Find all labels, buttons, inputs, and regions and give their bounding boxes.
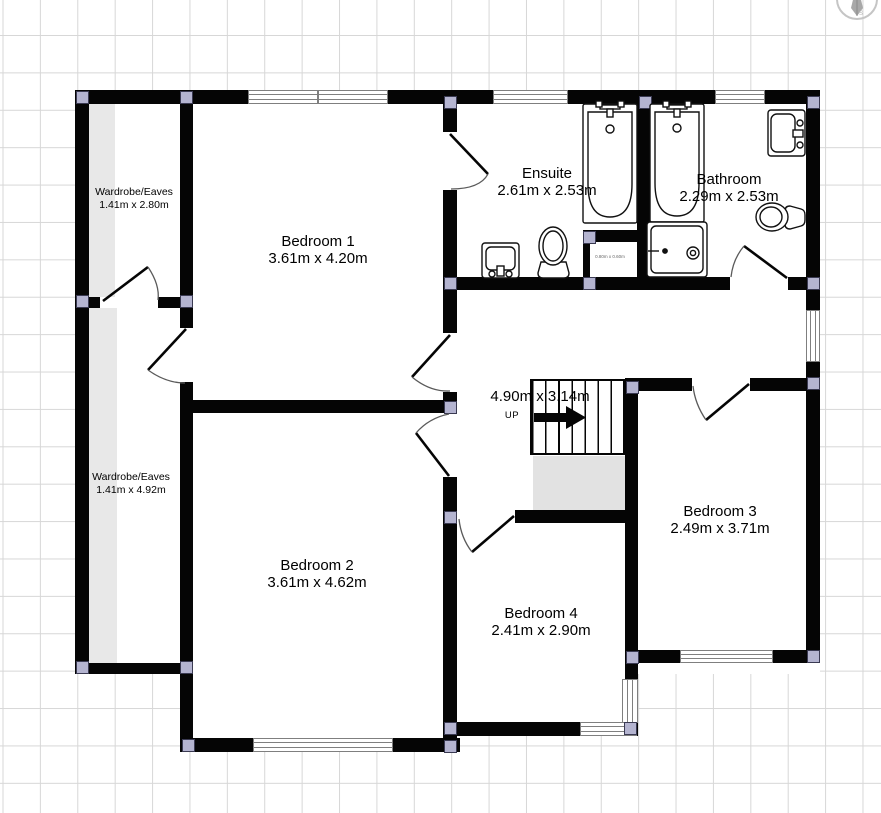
wall-joint-handle[interactable] bbox=[807, 96, 820, 109]
room-label-bedroom-4: Bedroom 4 2.41m x 2.90m bbox=[441, 605, 641, 639]
window-ensuite bbox=[493, 90, 568, 104]
room-label-bedroom-3: Bedroom 3 2.49m x 3.71m bbox=[620, 503, 820, 537]
window-bedroom4-right bbox=[622, 679, 638, 723]
wall-joint-handle[interactable] bbox=[76, 91, 89, 104]
room-name: Ensuite bbox=[447, 165, 647, 182]
wall-wardrobe2-bottom bbox=[75, 663, 193, 674]
wall-joint-handle[interactable] bbox=[807, 377, 820, 390]
wall-ensuite-bottom bbox=[443, 277, 637, 290]
room-name: Bedroom 2 bbox=[217, 557, 417, 574]
wall-bed1-ensuite-lower bbox=[443, 190, 457, 290]
wall-joint-handle[interactable] bbox=[180, 295, 193, 308]
wall-left bbox=[75, 90, 89, 674]
wall-joint-handle[interactable] bbox=[444, 740, 457, 753]
wall-bathroom-bottom-left bbox=[637, 277, 730, 290]
room-dims: 2.41m x 2.90m bbox=[441, 622, 641, 639]
room-label-cupboard: 0.80m x 0.60m bbox=[580, 254, 640, 259]
window-landing-right bbox=[806, 310, 820, 362]
stairs-up-label: UP bbox=[487, 410, 537, 421]
room-label-wardrobe-eaves-1: Wardrobe/Eaves 1.41m x 2.80m bbox=[34, 186, 234, 211]
room-dims: 3.61m x 4.20m bbox=[218, 250, 418, 267]
window-bedroom3 bbox=[680, 650, 773, 663]
wall-joint-handle[interactable] bbox=[624, 722, 637, 735]
wall-wardrobe-divider-lower bbox=[180, 382, 193, 752]
room-name: Wardrobe/Eaves bbox=[34, 186, 234, 199]
wall-joint-handle[interactable] bbox=[76, 295, 89, 308]
room-dims: 2.49m x 3.71m bbox=[620, 520, 820, 537]
floorplan-canvas: S Wardrobe/Eaves 1.41m x 2.80m Bedroom 1… bbox=[0, 0, 881, 813]
wall-joint-handle[interactable] bbox=[444, 96, 457, 109]
room-dims: 2.29m x 2.53m bbox=[629, 188, 829, 205]
wall-joint-handle[interactable] bbox=[583, 277, 596, 290]
room-label-wardrobe-eaves-2: Wardrobe/Eaves 1.41m x 4.92m bbox=[31, 471, 231, 496]
wall-landing-left-a bbox=[443, 290, 457, 333]
stair-void bbox=[533, 456, 625, 510]
wall-bed1-bed2-divider bbox=[180, 400, 448, 413]
wall-joint-handle[interactable] bbox=[444, 277, 457, 290]
landing-dims-label: 4.90m x 3.14m bbox=[440, 388, 640, 405]
compass-icon: S bbox=[837, 0, 877, 19]
wall-joint-handle[interactable] bbox=[583, 231, 596, 244]
wall-bed4-top bbox=[515, 510, 625, 523]
wall-joint-handle[interactable] bbox=[807, 650, 820, 663]
window-bedroom2 bbox=[253, 738, 393, 752]
room-dims: 1.41m x 2.80m bbox=[34, 199, 234, 212]
room-label-bedroom-2: Bedroom 2 3.61m x 4.62m bbox=[217, 557, 417, 591]
window-bedroom1-left bbox=[248, 90, 318, 104]
room-dims: 3.61m x 4.62m bbox=[217, 574, 417, 591]
wall-joint-handle[interactable] bbox=[639, 96, 652, 109]
room-label-bedroom-1: Bedroom 1 3.61m x 4.20m bbox=[218, 233, 418, 267]
room-label-bathroom: Bathroom 2.29m x 2.53m bbox=[629, 171, 829, 205]
compass-south-label: S bbox=[859, 11, 863, 17]
window-bathroom bbox=[715, 90, 765, 104]
window-bedroom1-right bbox=[318, 90, 388, 104]
room-name: Bedroom 3 bbox=[620, 503, 820, 520]
wall-joint-handle[interactable] bbox=[807, 277, 820, 290]
room-dims: 2.61m x 2.53m bbox=[447, 182, 647, 199]
room-dims: 0.80m x 0.60m bbox=[580, 254, 640, 259]
room-name: Wardrobe/Eaves bbox=[31, 471, 231, 484]
wall-joint-handle[interactable] bbox=[76, 661, 89, 674]
wall-joint-handle[interactable] bbox=[626, 651, 639, 664]
room-name: Bathroom bbox=[629, 171, 829, 188]
room-dims: 4.90m x 3.14m bbox=[440, 388, 640, 405]
wall-joint-handle[interactable] bbox=[444, 511, 457, 524]
room-name: Bedroom 1 bbox=[218, 233, 418, 250]
wall-joint-handle[interactable] bbox=[182, 739, 195, 752]
wall-joint-handle[interactable] bbox=[180, 661, 193, 674]
room-name: Bedroom 4 bbox=[441, 605, 641, 622]
wall-joint-handle[interactable] bbox=[444, 722, 457, 735]
room-dims: 1.41m x 4.92m bbox=[31, 484, 231, 497]
room-label-ensuite: Ensuite 2.61m x 2.53m bbox=[447, 165, 647, 199]
wall-joint-handle[interactable] bbox=[180, 91, 193, 104]
